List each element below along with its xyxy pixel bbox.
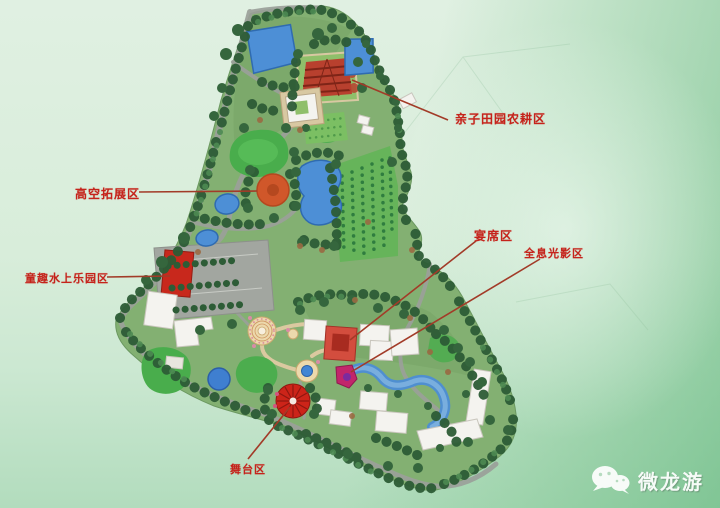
courtyard-building [280,88,324,129]
leader-line-high-ropes [139,191,257,192]
master-plan-image: 亲子田园农耕区 高空拓展区 童趣水上乐园区 宴席区 全息光影区 舞台区 微龙游 [0,0,720,508]
label-stage-area: 舞台区 [230,461,266,477]
kids-water-park-building [161,250,194,297]
watermark: 微龙游 [591,464,704,496]
watermark-text: 微龙游 [638,466,704,495]
label-kids-water-park-area: 童趣水上乐园区 [25,270,109,286]
label-farm-area: 亲子田园农耕区 [455,110,546,127]
wechat-bubbles-icon [591,464,631,496]
leader-line-water-park [107,276,170,277]
site-plan-map [0,0,720,508]
high-ropes-dome [257,174,289,206]
label-holographic-light-area: 全息光影区 [524,245,584,261]
label-banquet-area: 宴席区 [474,227,513,244]
label-high-ropes-area: 高空拓展区 [75,185,140,202]
ring-pond-plaza [296,360,318,382]
